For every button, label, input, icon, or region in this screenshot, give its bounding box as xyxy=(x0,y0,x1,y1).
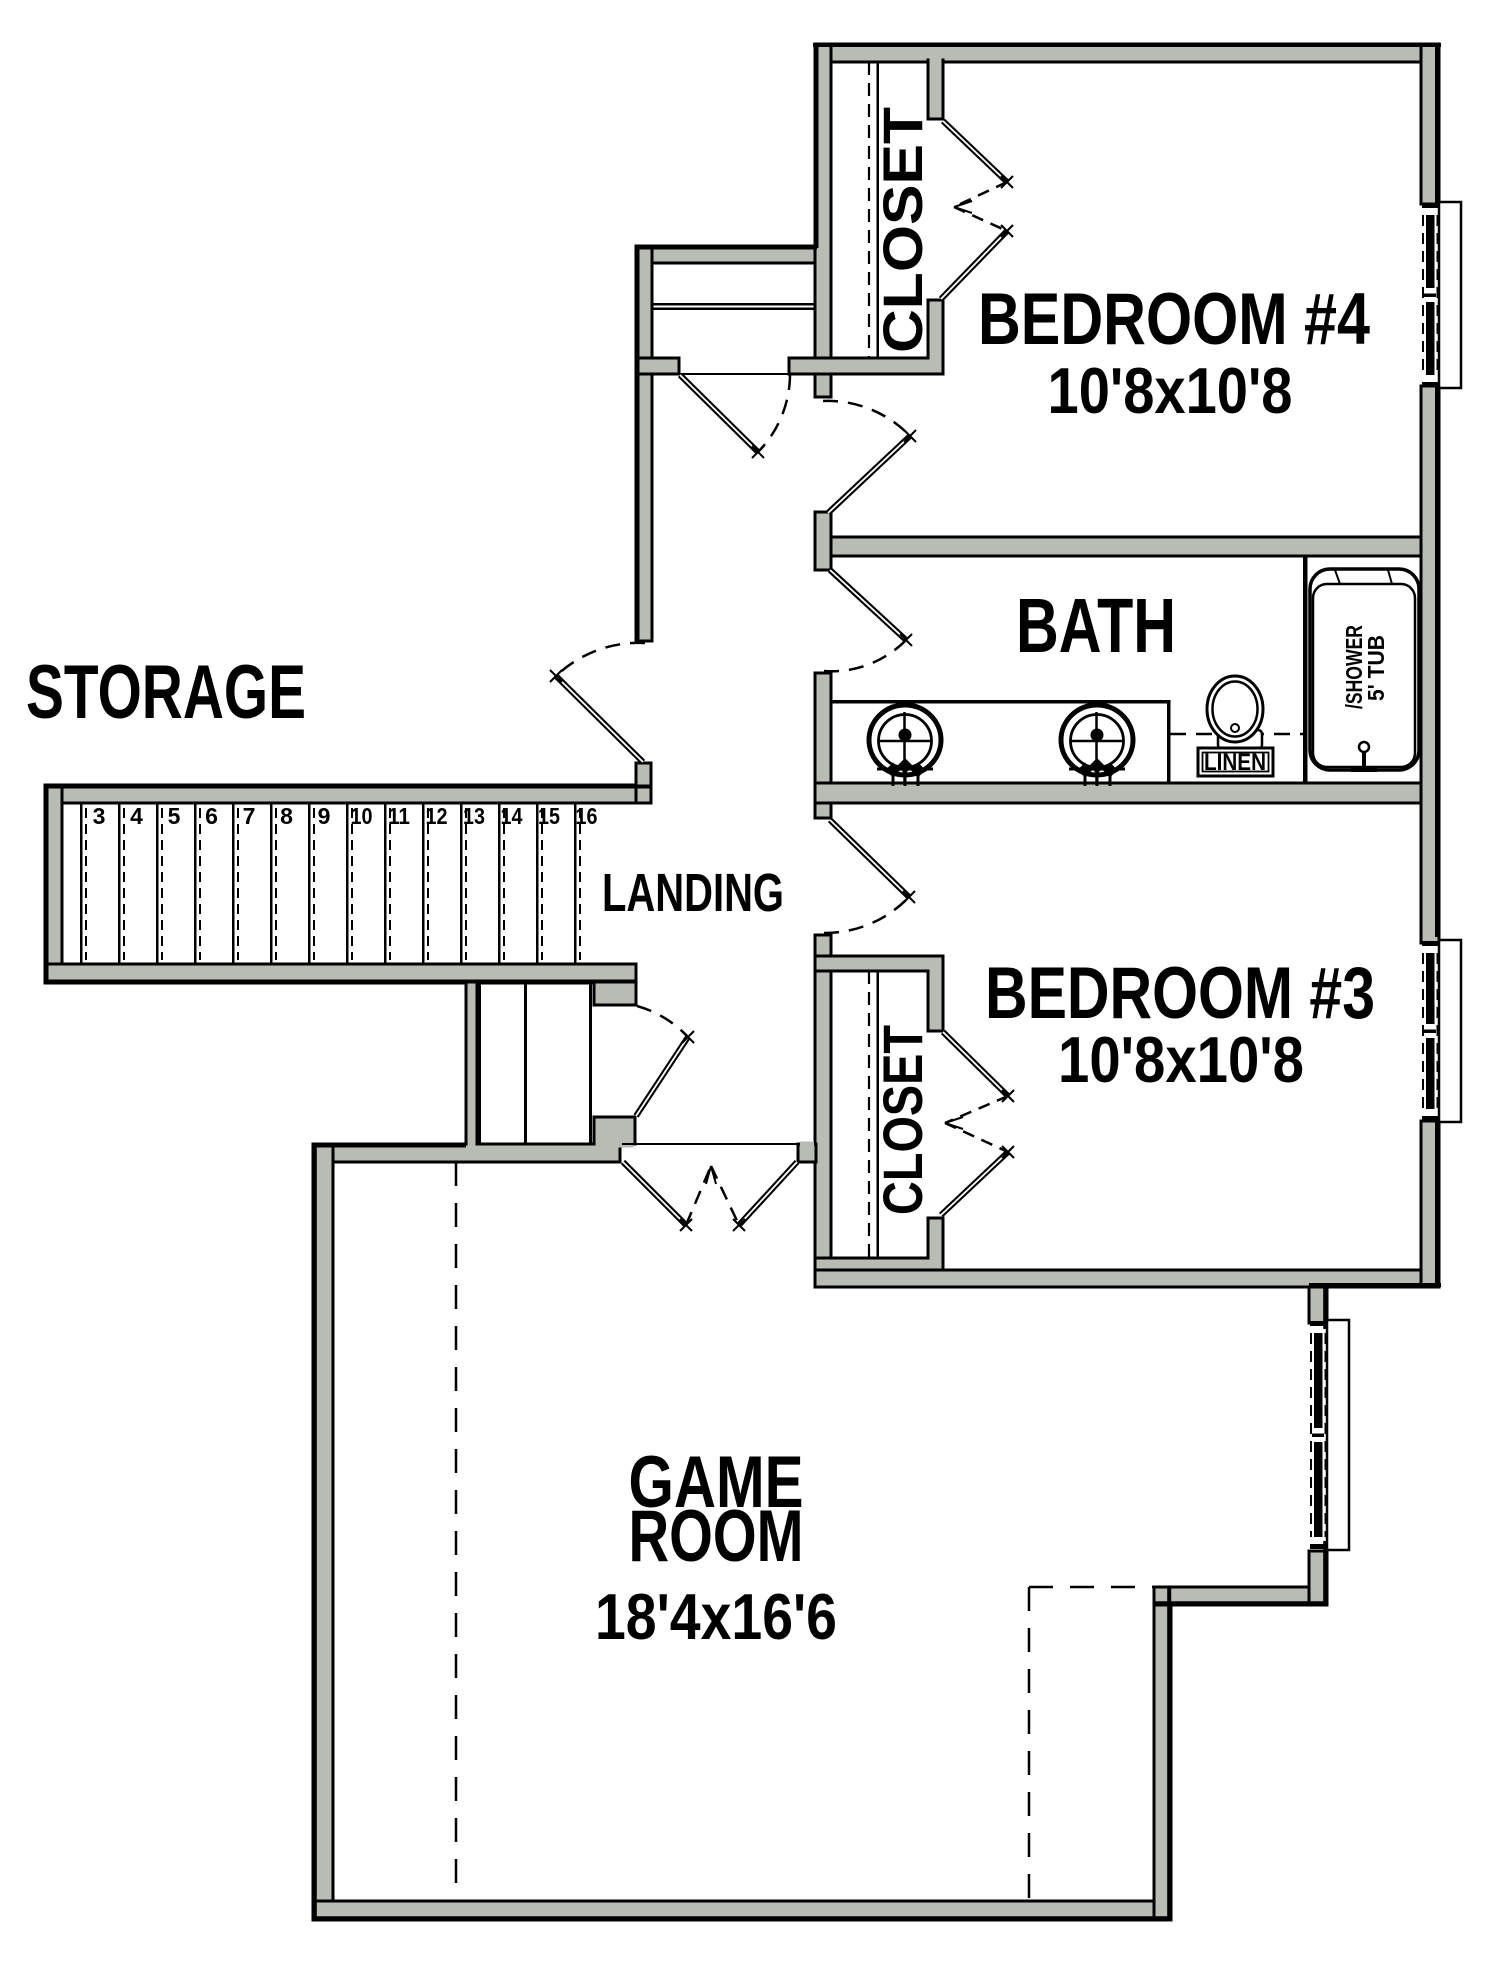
svg-text:10'8x10'8: 10'8x10'8 xyxy=(1048,354,1293,427)
svg-text:BEDROOM #3: BEDROOM #3 xyxy=(985,953,1375,1034)
svg-text:15: 15 xyxy=(538,803,560,829)
svg-text:13: 13 xyxy=(463,803,485,829)
svg-text:9: 9 xyxy=(318,803,331,829)
svg-text:18'4x16'6: 18'4x16'6 xyxy=(595,1580,837,1653)
svg-text:LINEN: LINEN xyxy=(1204,749,1266,776)
svg-text:8: 8 xyxy=(280,803,293,829)
svg-text:ROOM: ROOM xyxy=(629,1496,804,1577)
svg-text:4: 4 xyxy=(130,803,143,829)
svg-text:10'8x10'8: 10'8x10'8 xyxy=(1058,1023,1304,1096)
svg-text:BATH: BATH xyxy=(1016,583,1176,669)
svg-text:11: 11 xyxy=(388,803,410,829)
svg-text:14: 14 xyxy=(501,803,523,829)
svg-text:CLOSET: CLOSET xyxy=(871,107,934,353)
svg-text:LANDING: LANDING xyxy=(602,863,784,923)
svg-text:5: 5 xyxy=(168,803,181,829)
svg-text:CLOSET: CLOSET xyxy=(871,1025,934,1215)
svg-text:5' TUB: 5' TUB xyxy=(1363,635,1389,701)
svg-text:BEDROOM #4: BEDROOM #4 xyxy=(978,279,1370,360)
svg-text:STORAGE: STORAGE xyxy=(26,650,306,735)
svg-text:12: 12 xyxy=(426,803,448,829)
svg-text:16: 16 xyxy=(576,803,598,829)
svg-text:7: 7 xyxy=(243,803,256,829)
svg-text:10: 10 xyxy=(351,803,373,829)
svg-text:6: 6 xyxy=(205,803,218,829)
svg-text:3: 3 xyxy=(93,803,106,829)
